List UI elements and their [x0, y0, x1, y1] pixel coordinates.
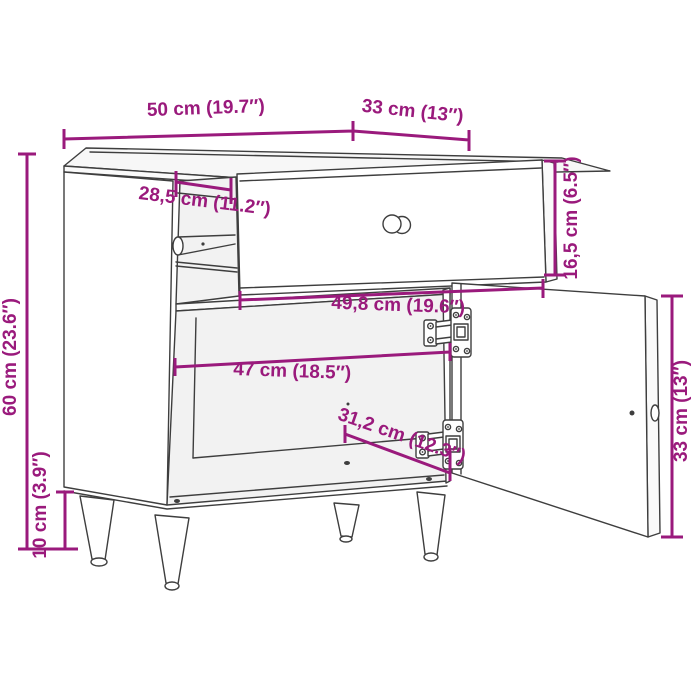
- product-dimension-diagram: 50 cm (19.7″) 33 cm (13″) 60 cm (23.6″) …: [0, 0, 700, 700]
- dim-label-drawer-front-height: 16,5 cm (6.5″): [561, 156, 582, 279]
- dim-label-total-height: 60 cm (23.6″): [0, 298, 21, 416]
- door-cavity-interior: [167, 294, 450, 505]
- cabinet-left-side-panel: [64, 172, 173, 505]
- dim-label-top-width: 50 cm (19.7″): [147, 96, 266, 121]
- dim-label-top-depth: 33 cm (13″): [361, 96, 465, 128]
- leg-back-right: [334, 503, 359, 542]
- leg-front-right: [417, 492, 445, 561]
- dim-door-height: 33 cm (13″): [661, 296, 692, 537]
- door-knob-side: [651, 405, 659, 421]
- leg-back-left: [155, 515, 189, 590]
- dim-top-width: 50 cm (19.7″): [64, 96, 353, 149]
- leg-front-left: [80, 496, 114, 566]
- dim-top-depth: 33 cm (13″): [353, 96, 469, 151]
- dim-label-leg-height: 10 cm (3.9″): [30, 451, 51, 558]
- cabinet-diagram-svg: 50 cm (19.7″) 33 cm (13″) 60 cm (23.6″) …: [0, 0, 700, 700]
- door-panel: [452, 283, 660, 537]
- drawer-slide-damper: [173, 237, 183, 255]
- drawer-knob: [383, 215, 411, 234]
- door-knob-dot: [630, 411, 635, 416]
- dim-label-interior-width: 47 cm (18.5″): [233, 359, 352, 384]
- dim-label-door-height: 33 cm (13″): [671, 360, 692, 462]
- drawer-front-panel: [237, 160, 557, 295]
- cabinet-legs: [80, 492, 445, 590]
